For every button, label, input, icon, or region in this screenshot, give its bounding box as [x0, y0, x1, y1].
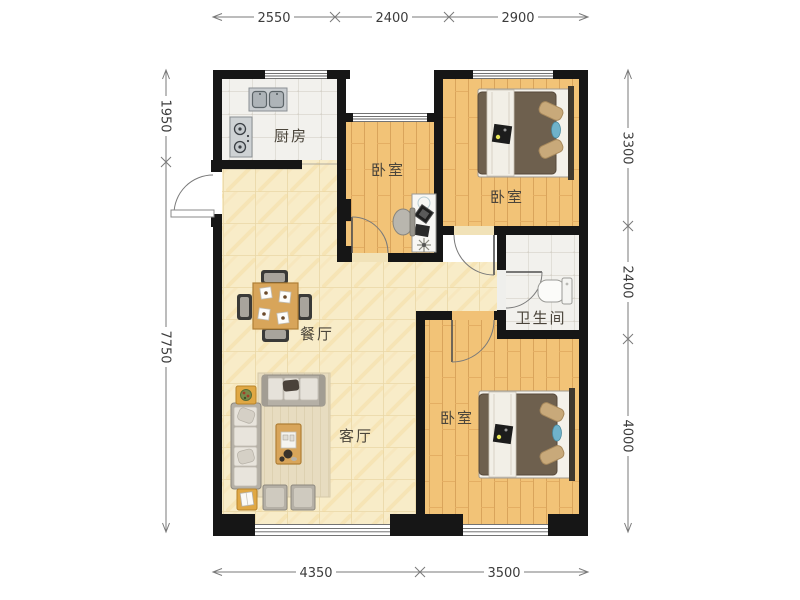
room-label-bedroom-right: 卧室 [490, 188, 524, 206]
room-label-bedroom-bottom: 卧室 [440, 409, 474, 427]
bedroom-mid-window [353, 113, 427, 123]
room-label-bathroom: 卫生间 [515, 309, 566, 327]
entrance-door [171, 172, 222, 217]
living-set [231, 373, 330, 510]
dim-top-1: 2550 [257, 11, 290, 26]
dim-right-3: 4000 [620, 419, 635, 452]
kitchen-window [265, 70, 327, 80]
dim-right-1: 3300 [620, 131, 635, 164]
dim-left-2: 7750 [158, 330, 173, 363]
double-bed-bottom-symbol [479, 388, 575, 481]
floor-plan-canvas: 厨房 卧室 卧室 卫生间 餐厅 客厅 卧室 2550 2400 2900 435… [0, 0, 800, 600]
living-floor-center [337, 262, 416, 524]
double-bed-right-symbol [478, 86, 574, 180]
dim-bottom-2: 3500 [487, 566, 520, 581]
dining-chair [262, 328, 289, 342]
room-label-bedroom-mid: 卧室 [371, 161, 405, 179]
kitchen-stove-symbol [230, 117, 252, 157]
room-label-living: 客厅 [339, 427, 373, 445]
dining-chair [261, 270, 288, 284]
room-label-kitchen: 厨房 [274, 127, 308, 145]
desk-chair-symbol [393, 208, 415, 236]
sofa-top-symbol [262, 375, 325, 406]
dim-top-2: 2400 [375, 11, 408, 26]
side-table-book-symbol [237, 489, 257, 510]
desk-plant-icon [417, 238, 431, 252]
desk-symbol [412, 194, 436, 252]
room-label-dining: 餐厅 [300, 325, 334, 343]
dimension-bottom: 4350 3500 [213, 565, 588, 582]
sofa-left-symbol [231, 403, 261, 489]
dimension-right: 3300 2400 4000 [620, 70, 636, 532]
floor-plan-drawing: 厨房 卧室 卧室 卫生间 餐厅 客厅 卧室 2550 2400 2900 435… [0, 0, 800, 600]
dim-bottom-1: 4350 [299, 566, 332, 581]
coffee-table-symbol [276, 424, 301, 464]
dimension-left: 1950 7750 [158, 70, 174, 532]
bedroom-right-window [473, 70, 553, 80]
dining-chair [237, 294, 252, 320]
living-window [255, 524, 390, 536]
hallway-floor [416, 262, 497, 311]
dim-right-2: 2400 [620, 265, 635, 298]
dim-left-1: 1950 [158, 99, 173, 132]
kitchen-sink-symbol [249, 88, 287, 111]
toilet-symbol [538, 278, 572, 304]
side-table-plant-symbol [236, 386, 256, 404]
bedroom-bottom-window [463, 524, 548, 536]
dining-chair [297, 294, 312, 320]
dim-top-3: 2900 [501, 11, 534, 26]
dimension-top: 2550 2400 2900 [213, 10, 588, 27]
